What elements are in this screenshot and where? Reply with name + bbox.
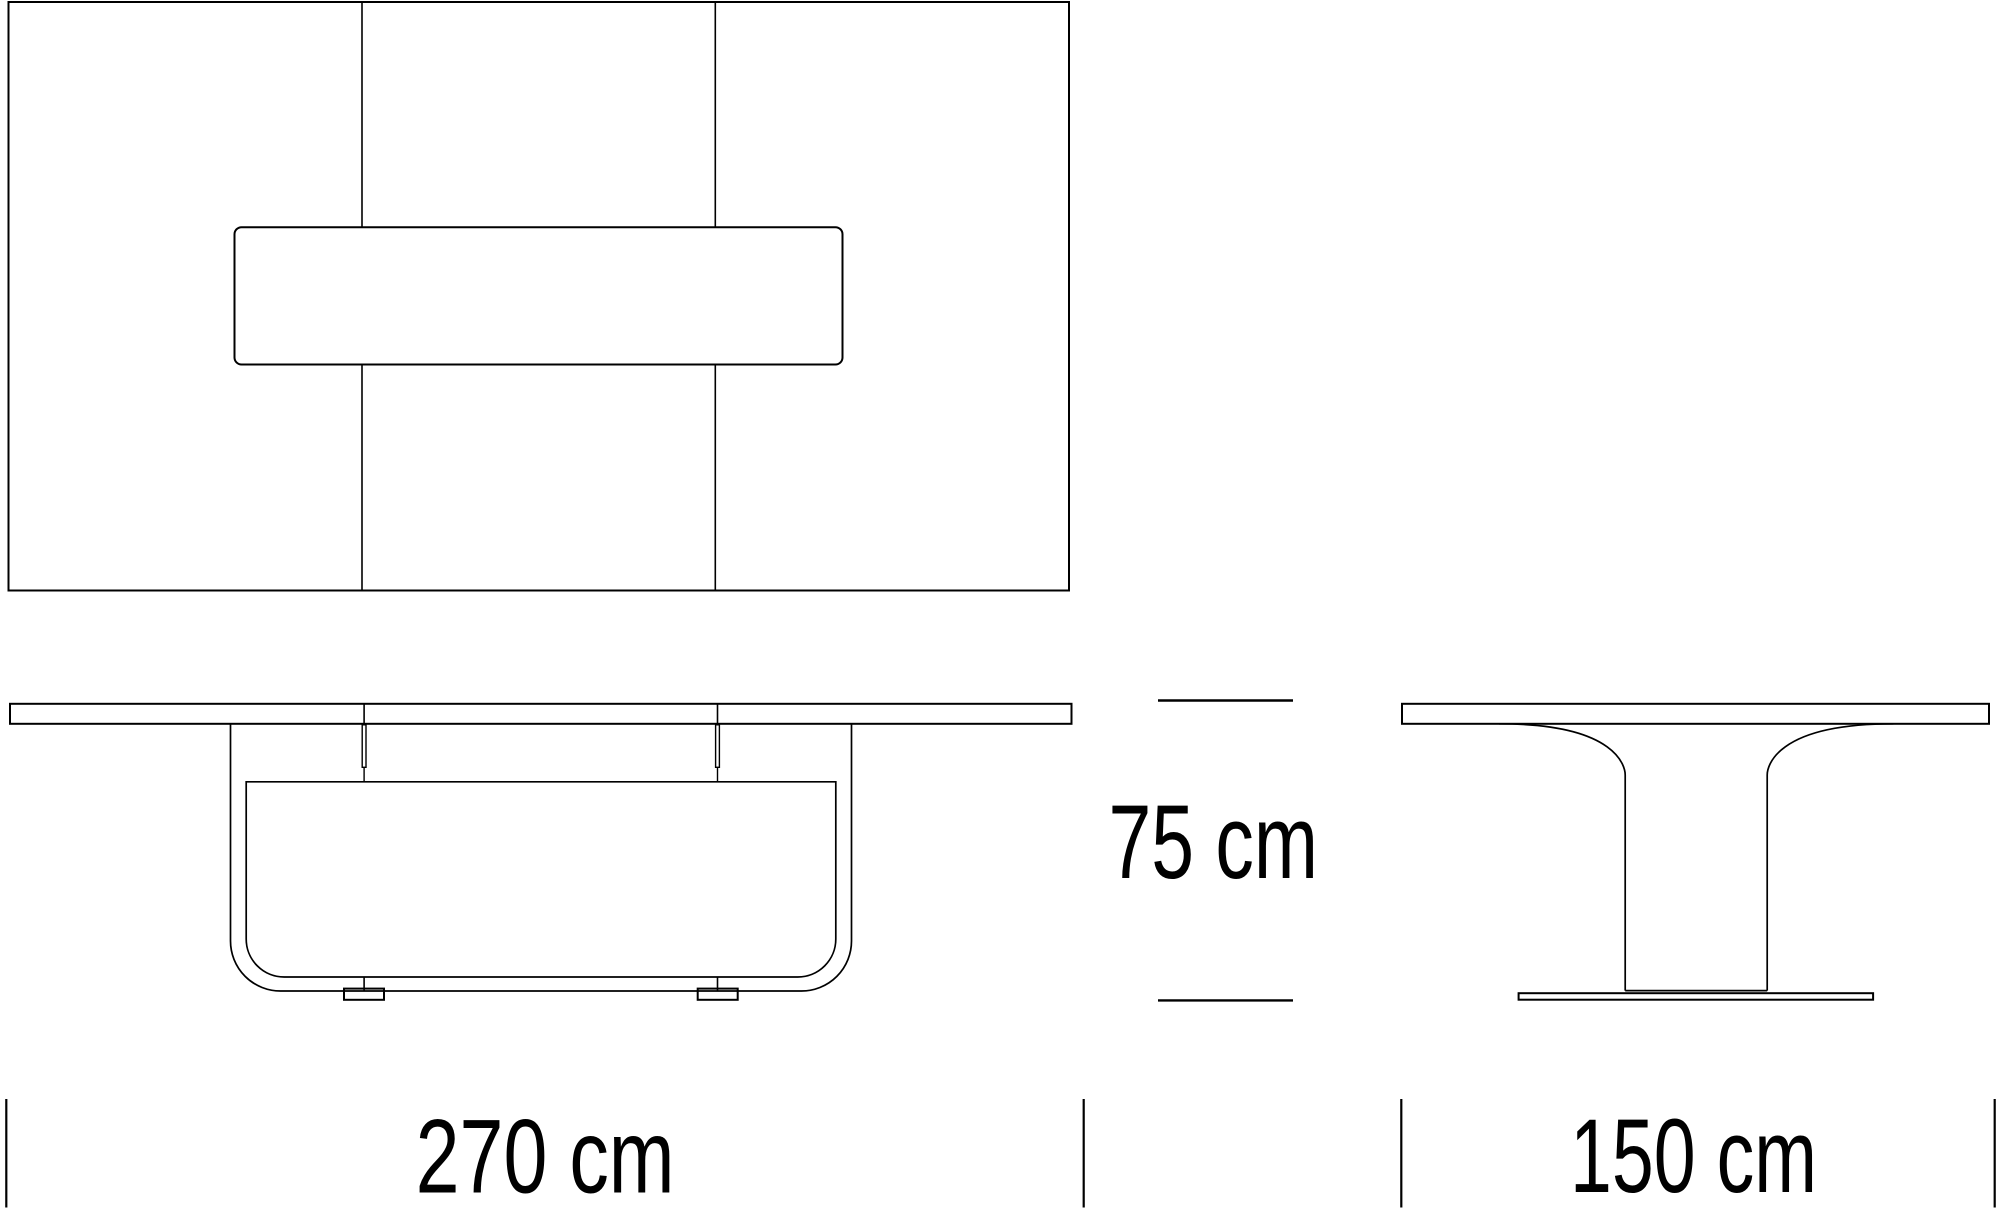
svg-text:75 cm: 75 cm [1108, 784, 1318, 901]
svg-text:150 cm: 150 cm [1570, 1098, 1817, 1215]
svg-text:270 cm: 270 cm [416, 1099, 675, 1215]
